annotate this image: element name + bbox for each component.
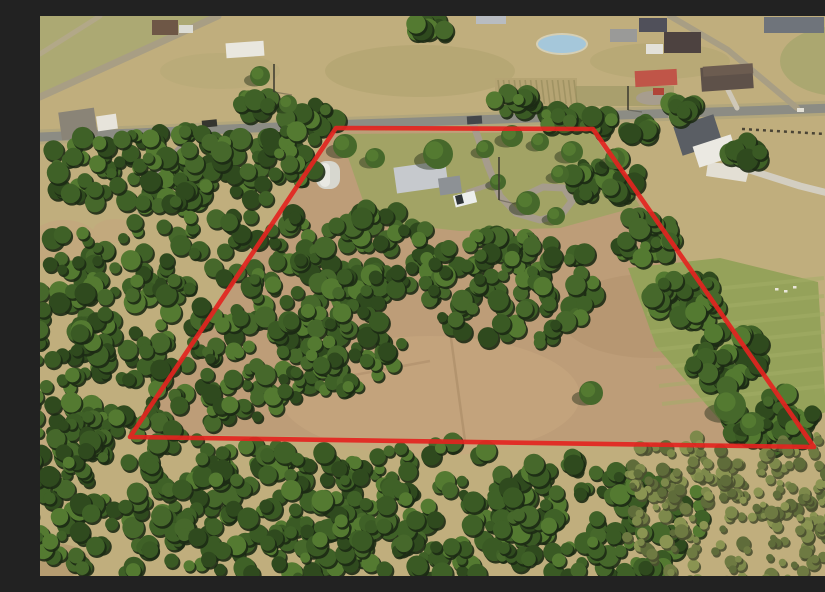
large-dark-house bbox=[664, 32, 701, 53]
dark-roof-house-top bbox=[639, 18, 667, 32]
building-top-center bbox=[476, 16, 506, 24]
building-top-left bbox=[152, 20, 178, 35]
white-shed-top bbox=[646, 44, 663, 54]
trailer-top-left bbox=[179, 25, 193, 33]
parcel-house-wing bbox=[438, 176, 462, 196]
gray-house-top bbox=[610, 29, 637, 42]
aerial-property-photo bbox=[40, 16, 825, 576]
white-barn-top bbox=[226, 41, 265, 59]
pond-layer bbox=[536, 33, 588, 55]
warehouse-topright bbox=[764, 17, 824, 33]
pond bbox=[538, 35, 586, 53]
red-roof-barn bbox=[635, 69, 678, 87]
car-on-road-right bbox=[797, 108, 804, 112]
shed-nw bbox=[96, 114, 118, 132]
aerial-scene-svg bbox=[40, 16, 825, 576]
tractor-at-barn bbox=[653, 88, 664, 95]
car-at-entrance bbox=[467, 115, 483, 124]
